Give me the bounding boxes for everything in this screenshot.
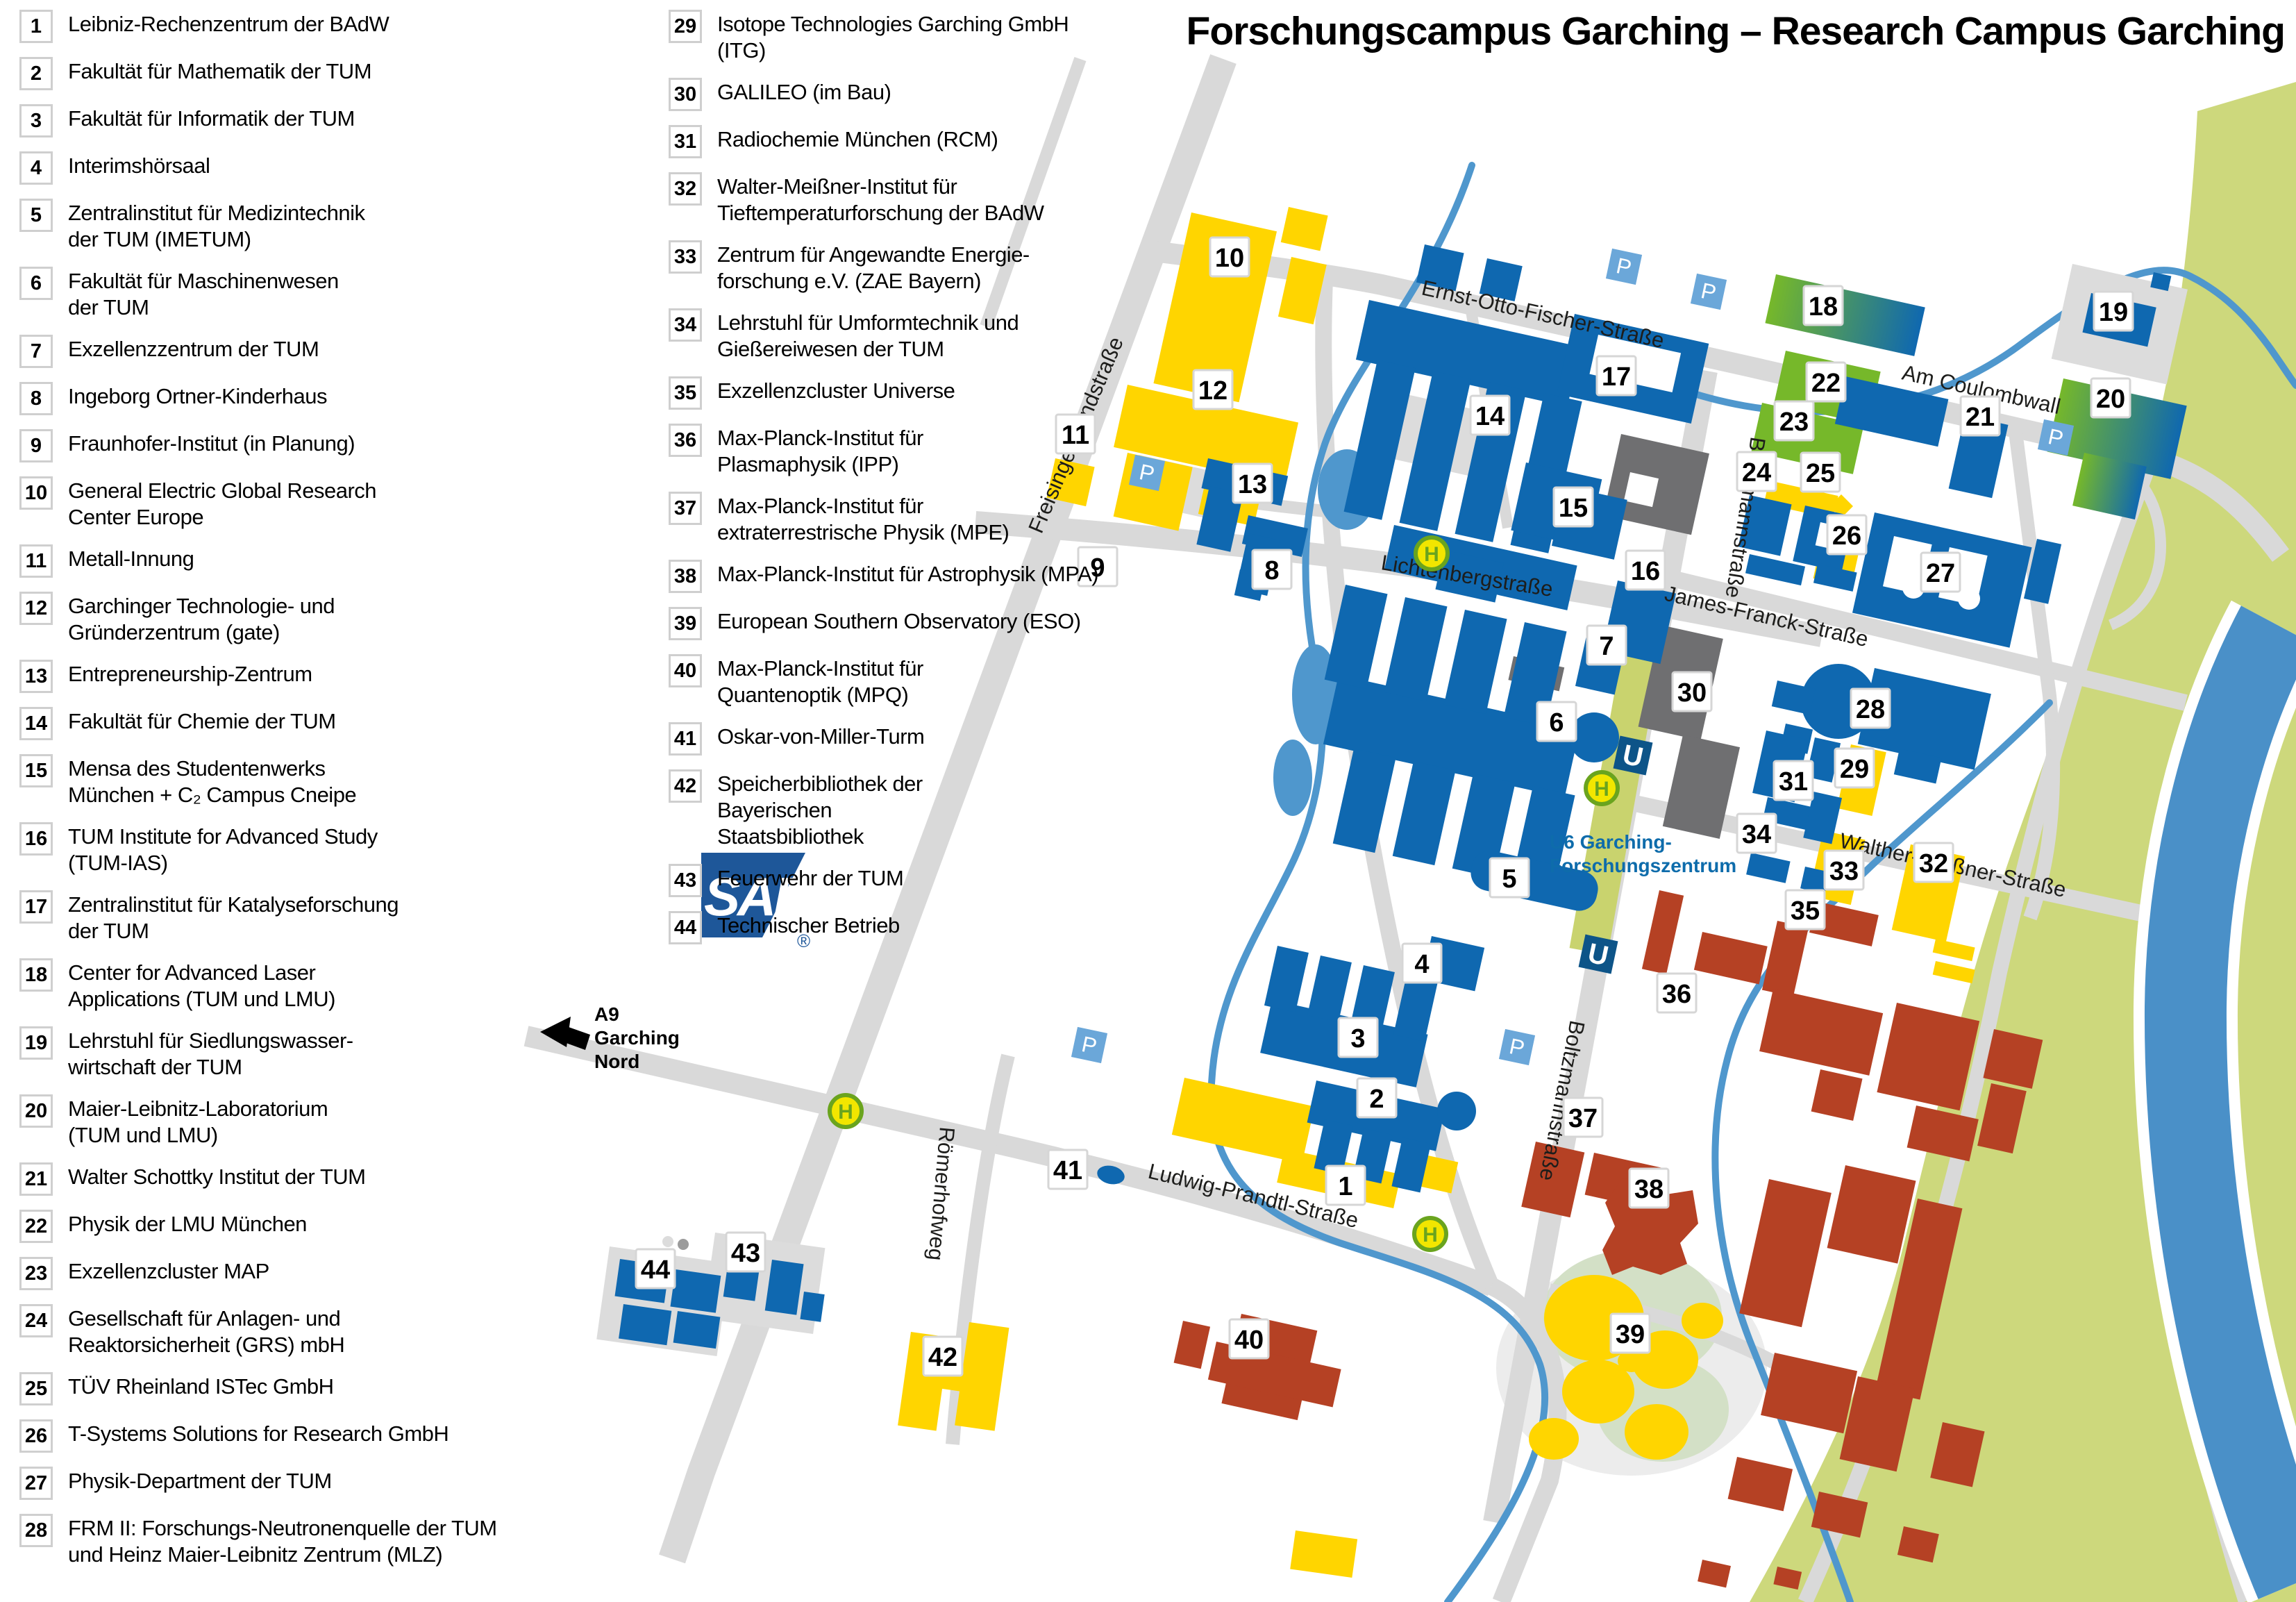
legend-item-number: 39 — [669, 607, 702, 640]
legend-item-label: Mensa des Studentenwerks München + C₂ Ca… — [68, 754, 356, 808]
building-marker-27: 27 — [1921, 553, 1960, 592]
legend-item-38: 38Max-Planck-Institut für Astrophysik (M… — [669, 560, 1113, 593]
legend-item-label: Speicherbibliothek der Bayerischen Staat… — [717, 769, 923, 850]
legend-item-number: 32 — [669, 172, 702, 206]
legend-item-label: Ingeborg Ortner-Kinderhaus — [68, 382, 327, 410]
building-marker-21: 21 — [1961, 397, 2000, 435]
svg-text:38: 38 — [1634, 1175, 1664, 1204]
legend-item-number: 35 — [669, 376, 702, 410]
parking-icon: P — [2038, 419, 2074, 456]
bus-stop-icon: H — [830, 1095, 862, 1127]
legend-item-label: Zentralinstitut für Katalyseforschung de… — [68, 890, 399, 944]
legend-item-number: 17 — [19, 890, 53, 924]
legend-item-31: 31Radiochemie München (RCM) — [669, 125, 1113, 158]
svg-text:4: 4 — [1414, 950, 1429, 979]
legend-item-number: 22 — [19, 1210, 53, 1243]
legend-item-number: 43 — [669, 864, 702, 897]
legend-item-number: 28 — [19, 1514, 53, 1547]
legend-item-label: Lehrstuhl für Siedlungswasser- wirtschaf… — [68, 1026, 353, 1080]
svg-text:H: H — [1423, 1224, 1438, 1246]
svg-text:32: 32 — [1919, 849, 1948, 878]
svg-text:30: 30 — [1677, 678, 1707, 708]
legend-item-8: 8Ingeborg Ortner-Kinderhaus — [19, 382, 505, 415]
building-marker-39: 39 — [1611, 1314, 1650, 1353]
building-marker-5: 5 — [1490, 858, 1529, 897]
legend-item-36: 36Max-Planck-Institut für Plasmaphysik (… — [669, 424, 1113, 478]
legend-item-number: 20 — [19, 1094, 53, 1128]
legend-item-number: 33 — [669, 240, 702, 274]
legend-item-number: 38 — [669, 560, 702, 593]
legend-item-number: 7 — [19, 335, 53, 368]
legend-item-17: 17Zentralinstitut für Katalyseforschung … — [19, 890, 505, 944]
building-marker-42: 42 — [923, 1337, 962, 1376]
svg-text:1: 1 — [1338, 1172, 1352, 1201]
a9-line1: A9 — [594, 1003, 619, 1025]
legend-item-35: 35Exzellenzcluster Universe — [669, 376, 1113, 410]
a9-line3: Nord — [594, 1051, 639, 1072]
legend-item-label: Max-Planck-Institut für extraterrestrisc… — [717, 492, 1009, 546]
legend-item-14: 14Fakultät für Chemie der TUM — [19, 707, 505, 740]
building-marker-41: 41 — [1048, 1150, 1087, 1189]
legend-item-10: 10General Electric Global Research Cente… — [19, 476, 505, 531]
svg-text:40: 40 — [1234, 1326, 1264, 1355]
legend-item-21: 21Walter Schottky Institut der TUM — [19, 1162, 505, 1196]
svg-text:13: 13 — [1238, 470, 1267, 499]
legend-item-label: Exzellenzcluster MAP — [68, 1257, 269, 1285]
svg-text:25: 25 — [1806, 459, 1835, 488]
svg-text:18: 18 — [1809, 292, 1838, 322]
legend-item-label: Fraunhofer-Institut (in Planung) — [68, 429, 355, 457]
svg-text:7: 7 — [1599, 632, 1614, 661]
legend-item-number: 11 — [19, 544, 53, 578]
legend-item-number: 10 — [19, 476, 53, 510]
legend-item-32: 32Walter-Meißner-Institut für Tieftemper… — [669, 172, 1113, 226]
legend-item-16: 16TUM Institute for Advanced Study (TUM-… — [19, 822, 505, 876]
building-marker-43: 43 — [726, 1233, 765, 1271]
building-marker-32: 32 — [1914, 843, 1953, 882]
svg-text:28: 28 — [1856, 695, 1885, 724]
svg-text:42: 42 — [928, 1343, 957, 1372]
legend-item-number: 16 — [19, 822, 53, 856]
building-marker-33: 33 — [1825, 851, 1863, 890]
legend-item-number: 29 — [669, 10, 702, 43]
building-marker-10: 10 — [1210, 237, 1249, 276]
pond — [1273, 740, 1312, 816]
legend-item-label: Exzellenzzentrum der TUM — [68, 335, 319, 362]
campus-map-page: U6 Garching- Forschungszentrum A9 Garchi… — [0, 0, 2296, 1602]
legend-item-label: Leibniz-Rechenzentrum der BAdW — [68, 10, 389, 37]
svg-text:10: 10 — [1215, 244, 1244, 273]
legend-item-39: 39European Southern Observatory (ESO) — [669, 607, 1113, 640]
legend-item-number: 44 — [669, 911, 702, 944]
bus-stop-icon: H — [1414, 1218, 1446, 1250]
legend-item-label: Lehrstuhl für Umformtechnik und Gießerei… — [717, 308, 1019, 362]
building-marker-37: 37 — [1564, 1098, 1602, 1137]
legend-item-9: 9Fraunhofer-Institut (in Planung) — [19, 429, 505, 462]
svg-text:35: 35 — [1791, 896, 1820, 926]
legend-item-label: Zentralinstitut für Medizintechnik der T… — [68, 199, 365, 253]
legend-item-label: Max-Planck-Institut für Astrophysik (MPA… — [717, 560, 1098, 587]
legend-item-label: Technischer Betrieb — [717, 911, 900, 939]
legend-item-23: 23Exzellenzcluster MAP — [19, 1257, 505, 1290]
legend-item-label: Fakultät für Mathematik der TUM — [68, 57, 371, 85]
svg-text:39: 39 — [1616, 1320, 1645, 1349]
building-marker-16: 16 — [1626, 551, 1665, 590]
legend-item-label: Oskar-von-Miller-Turm — [717, 722, 924, 750]
building-marker-24: 24 — [1737, 452, 1776, 491]
u6-label: U6 Garching- Forschungszentrum — [1550, 831, 1736, 876]
parking-icon: P — [1129, 455, 1165, 491]
legend-item-label: Metall-Innung — [68, 544, 194, 572]
legend-item-number: 24 — [19, 1304, 53, 1337]
svg-text:15: 15 — [1559, 494, 1588, 523]
building-marker-19: 19 — [2094, 292, 2133, 331]
legend-item-number: 18 — [19, 958, 53, 992]
legend-item-label: Fakultät für Informatik der TUM — [68, 104, 355, 132]
building-marker-3: 3 — [1339, 1018, 1377, 1057]
legend-item-label: Walter-Meißner-Institut für Tieftemperat… — [717, 172, 1044, 226]
legend-item-number: 25 — [19, 1372, 53, 1405]
building-marker-29: 29 — [1835, 749, 1874, 787]
legend-item-number: 31 — [669, 125, 702, 158]
legend-item-label: Isotope Technologies Garching GmbH (ITG) — [717, 10, 1113, 64]
legend-item-1: 1Leibniz-Rechenzentrum der BAdW — [19, 10, 505, 43]
legend-item-15: 15Mensa des Studentenwerks München + C₂ … — [19, 754, 505, 808]
legend-item-label: Radiochemie München (RCM) — [717, 125, 998, 153]
building-marker-35: 35 — [1786, 890, 1825, 929]
building-marker-30: 30 — [1673, 672, 1711, 711]
legend-item-label: Maier-Leibnitz-Laboratorium (TUM und LMU… — [68, 1094, 328, 1149]
legend-item-number: 3 — [19, 104, 53, 137]
svg-text:44: 44 — [641, 1255, 670, 1285]
svg-text:43: 43 — [731, 1239, 760, 1268]
legend-item-20: 20Maier-Leibnitz-Laboratorium (TUM und L… — [19, 1094, 505, 1149]
legend-item-33: 33Zentrum für Angewandte Energie- forsch… — [669, 240, 1113, 294]
legend-item-2: 2Fakultät für Mathematik der TUM — [19, 57, 505, 90]
building-marker-31: 31 — [1774, 761, 1813, 800]
legend-item-4: 4Interimshörsaal — [19, 151, 505, 185]
legend-item-number: 9 — [19, 429, 53, 462]
legend-item-label: Center for Advanced Laser Applications (… — [68, 958, 335, 1012]
legend-item-number: 19 — [19, 1026, 53, 1060]
legend-item-label: Fakultät für Maschinenwesen der TUM — [68, 267, 339, 321]
building-marker-40: 40 — [1230, 1319, 1268, 1358]
svg-text:34: 34 — [1742, 820, 1771, 849]
legend-item-label: Garchinger Technologie- und Gründerzentr… — [68, 592, 335, 646]
legend-item-label: Max-Planck-Institut für Plasmaphysik (IP… — [717, 424, 923, 478]
legend-item-43: 43Feuerwehr der TUM — [669, 864, 1113, 897]
parking-icon: P — [1499, 1029, 1535, 1065]
legend-item-label: General Electric Global Research Center … — [68, 476, 376, 531]
legend-item-number: 42 — [669, 769, 702, 803]
legend-item-label: Feuerwehr der TUM — [717, 864, 903, 892]
svg-text:21: 21 — [1966, 403, 1995, 432]
legend-item-label: Entrepreneurship-Zentrum — [68, 660, 312, 687]
legend-item-number: 4 — [19, 151, 53, 185]
svg-text:16: 16 — [1631, 557, 1660, 586]
svg-text:14: 14 — [1475, 402, 1505, 431]
svg-text:29: 29 — [1840, 755, 1869, 784]
legend-column-2: 29Isotope Technologies Garching GmbH (IT… — [669, 10, 1113, 958]
legend-item-40: 40Max-Planck-Institut für Quantenoptik (… — [669, 654, 1113, 708]
legend-item-number: 15 — [19, 754, 53, 787]
building-marker-18: 18 — [1804, 286, 1843, 325]
legend-item-number: 8 — [19, 382, 53, 415]
building-marker-17: 17 — [1597, 356, 1636, 395]
svg-text:8: 8 — [1264, 556, 1279, 585]
legend-item-number: 14 — [19, 707, 53, 740]
parking-icon: P — [1691, 274, 1727, 310]
legend-item-label: Walter Schottky Institut der TUM — [68, 1162, 365, 1190]
legend-item-label: Gesellschaft für Anlagen- und Reaktorsic… — [68, 1304, 344, 1358]
legend-item-label: Interimshörsaal — [68, 151, 210, 179]
legend-item-label: Fakultät für Chemie der TUM — [68, 707, 336, 735]
building-36-ipp — [1694, 932, 1768, 984]
svg-text:12: 12 — [1198, 376, 1227, 406]
legend-item-18: 18Center for Advanced Laser Applications… — [19, 958, 505, 1012]
svg-text:19: 19 — [2099, 298, 2128, 327]
ubahn-station-icon: U — [1614, 736, 1653, 776]
bus-stop-icon: H — [1416, 537, 1448, 569]
legend-item-29: 29Isotope Technologies Garching GmbH (IT… — [669, 10, 1113, 64]
building-marker-26: 26 — [1827, 515, 1866, 554]
svg-text:2: 2 — [1369, 1085, 1384, 1114]
legend-item-number: 40 — [669, 654, 702, 687]
legend-item-number: 13 — [19, 660, 53, 693]
legend-item-3: 3Fakultät für Informatik der TUM — [19, 104, 505, 137]
legend-item-label: Zentrum für Angewandte Energie- forschun… — [717, 240, 1030, 294]
svg-text:24: 24 — [1742, 458, 1771, 487]
u6-label-line2: Forschungszentrum — [1550, 855, 1736, 876]
svg-text:20: 20 — [2096, 385, 2125, 414]
legend-item-label: Physik der LMU München — [68, 1210, 307, 1237]
svg-text:27: 27 — [1926, 559, 1955, 588]
legend-item-22: 22Physik der LMU München — [19, 1210, 505, 1243]
building-marker-6: 6 — [1537, 702, 1576, 741]
svg-text:3: 3 — [1350, 1024, 1365, 1053]
legend-item-number: 36 — [669, 424, 702, 457]
parking-icon: P — [1606, 249, 1642, 285]
legend-item-number: 27 — [19, 1467, 53, 1500]
svg-text:41: 41 — [1053, 1156, 1082, 1185]
legend-item-number: 12 — [19, 592, 53, 625]
legend-item-34: 34Lehrstuhl für Umformtechnik und Gießer… — [669, 308, 1113, 362]
legend-item-42: 42Speicherbibliothek der Bayerischen Sta… — [669, 769, 1113, 850]
legend-item-number: 41 — [669, 722, 702, 756]
street-label: Römerhofweg — [923, 1126, 960, 1261]
legend-item-label: European Southern Observatory (ESO) — [717, 607, 1081, 635]
building-marker-44: 44 — [636, 1249, 675, 1288]
svg-text:23: 23 — [1779, 408, 1809, 437]
legend-item-11: 11Metall-Innung — [19, 544, 505, 578]
building-18 — [1765, 274, 1925, 356]
legend-item-5: 5Zentralinstitut für Medizintechnik der … — [19, 199, 505, 253]
legend-item-label: Exzellenzcluster Universe — [717, 376, 955, 404]
building-marker-23: 23 — [1775, 401, 1813, 440]
legend-item-label: GALILEO (im Bau) — [717, 78, 891, 106]
legend-item-7: 7Exzellenzzentrum der TUM — [19, 335, 505, 368]
building-marker-12: 12 — [1193, 370, 1232, 409]
legend-item-30: 30GALILEO (im Bau) — [669, 78, 1113, 111]
legend-item-27: 27Physik-Department der TUM — [19, 1467, 505, 1500]
legend-item-number: 34 — [669, 308, 702, 342]
u6-label-line1: U6 Garching- — [1550, 831, 1672, 853]
svg-text:31: 31 — [1779, 767, 1808, 796]
svg-text:6: 6 — [1549, 708, 1564, 737]
building-marker-22: 22 — [1807, 362, 1845, 401]
svg-text:37: 37 — [1568, 1104, 1598, 1133]
legend-item-25: 25TÜV Rheinland ISTec GmbH — [19, 1372, 505, 1405]
building-marker-15: 15 — [1554, 487, 1593, 526]
building-marker-13: 13 — [1233, 464, 1272, 503]
svg-text:H: H — [1424, 543, 1439, 566]
legend-item-37: 37Max-Planck-Institut für extraterrestri… — [669, 492, 1113, 546]
building-marker-14: 14 — [1470, 396, 1509, 435]
building-marker-1: 1 — [1326, 1166, 1365, 1205]
legend-item-number: 6 — [19, 267, 53, 300]
legend-column-1: 1Leibniz-Rechenzentrum der BAdW2Fakultät… — [19, 10, 505, 1582]
legend-item-28: 28FRM II: Forschungs-Neutronenquelle der… — [19, 1514, 505, 1568]
legend-item-number: 23 — [19, 1257, 53, 1290]
legend-item-41: 41Oskar-von-Miller-Turm — [669, 722, 1113, 756]
legend-item-label: FRM II: Forschungs-Neutronenquelle der T… — [68, 1514, 497, 1568]
building-marker-7: 7 — [1587, 626, 1626, 665]
legend-item-19: 19Lehrstuhl für Siedlungswasser- wirtsch… — [19, 1026, 505, 1080]
building-marker-2: 2 — [1357, 1078, 1396, 1117]
legend-item-number: 21 — [19, 1162, 53, 1196]
svg-text:33: 33 — [1829, 857, 1859, 886]
legend-item-6: 6Fakultät für Maschinenwesen der TUM — [19, 267, 505, 321]
building-marker-34: 34 — [1737, 814, 1776, 853]
legend-item-label: Physik-Department der TUM — [68, 1467, 332, 1494]
legend-item-24: 24Gesellschaft für Anlagen- und Reaktors… — [19, 1304, 505, 1358]
building-marker-28: 28 — [1851, 689, 1890, 728]
building-marker-36: 36 — [1657, 974, 1696, 1012]
legend-item-label: TÜV Rheinland ISTec GmbH — [68, 1372, 334, 1400]
legend-item-number: 26 — [19, 1419, 53, 1453]
svg-text:22: 22 — [1811, 369, 1841, 398]
a9-line2: Garching — [594, 1027, 680, 1049]
legend-item-13: 13Entrepreneurship-Zentrum — [19, 660, 505, 693]
legend-item-26: 26T-Systems Solutions for Research GmbH — [19, 1419, 505, 1453]
ubahn-station-icon: U — [1579, 935, 1618, 974]
svg-text:H: H — [1594, 778, 1609, 801]
svg-text:26: 26 — [1832, 522, 1861, 551]
svg-text:H: H — [838, 1101, 853, 1124]
building-marker-25: 25 — [1801, 453, 1840, 492]
legend-item-12: 12Garchinger Technologie- und Gründerzen… — [19, 592, 505, 646]
svg-text:36: 36 — [1662, 980, 1691, 1009]
legend-item-number: 1 — [19, 10, 53, 43]
legend-item-label: Max-Planck-Institut für Quantenoptik (MP… — [717, 654, 923, 708]
legend-item-number: 37 — [669, 492, 702, 525]
legend-item-number: 5 — [19, 199, 53, 232]
svg-text:5: 5 — [1502, 865, 1516, 894]
legend-item-number: 30 — [669, 78, 702, 111]
legend-item-label: TUM Institute for Advanced Study (TUM-IA… — [68, 822, 378, 876]
bus-stop-icon: H — [1586, 772, 1618, 804]
building-marker-20: 20 — [2091, 378, 2130, 417]
building-marker-38: 38 — [1629, 1169, 1668, 1208]
building-marker-4: 4 — [1402, 944, 1441, 983]
legend-item-label: T-Systems Solutions for Research GmbH — [68, 1419, 449, 1447]
parking-icon: P — [1071, 1027, 1107, 1063]
legend-item-number: 2 — [19, 57, 53, 90]
building-marker-8: 8 — [1252, 550, 1291, 589]
svg-text:17: 17 — [1602, 362, 1631, 392]
legend-item-44: 44Technischer Betrieb — [669, 911, 1113, 944]
page-title: Forschungscampus Garching – Research Cam… — [1187, 8, 2285, 54]
